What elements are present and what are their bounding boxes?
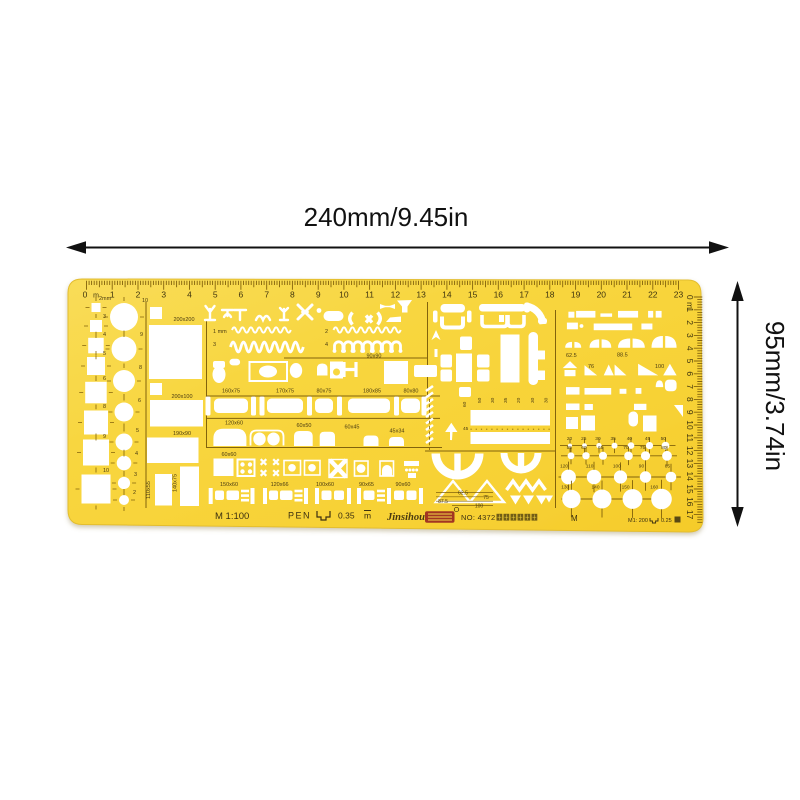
svg-text:100: 100 — [475, 504, 484, 510]
svg-text:180x85: 180x85 — [363, 389, 381, 395]
svg-text:70: 70 — [623, 445, 629, 451]
svg-text:170x75: 170x75 — [276, 389, 294, 395]
svg-text:60: 60 — [581, 445, 587, 451]
svg-text:35: 35 — [611, 436, 617, 442]
svg-text:6: 6 — [239, 290, 244, 300]
svg-text:12: 12 — [391, 290, 401, 300]
svg-text:17: 17 — [519, 290, 529, 300]
svg-text:45: 45 — [463, 426, 469, 432]
svg-text:6: 6 — [103, 376, 106, 382]
svg-text:7: 7 — [264, 290, 269, 300]
svg-text:0: 0 — [83, 290, 88, 300]
svg-text:5: 5 — [685, 359, 695, 364]
svg-text:10: 10 — [142, 298, 148, 304]
svg-text:5: 5 — [213, 290, 218, 300]
svg-text:87.5: 87.5 — [438, 499, 448, 505]
svg-text:80x75: 80x75 — [317, 389, 332, 395]
svg-text:18: 18 — [545, 290, 555, 300]
svg-text:11: 11 — [685, 433, 695, 442]
svg-text:3: 3 — [213, 342, 216, 348]
svg-text:160x75: 160x75 — [222, 389, 240, 395]
svg-text:2: 2 — [136, 290, 141, 300]
svg-text:120x60: 120x60 — [225, 421, 243, 427]
svg-text:110x55: 110x55 — [146, 481, 152, 499]
svg-text:62.5: 62.5 — [566, 353, 577, 359]
svg-text:2: 2 — [133, 490, 136, 496]
svg-text:60x45: 60x45 — [345, 425, 360, 431]
svg-text:m: m — [364, 511, 371, 521]
svg-text:M: M — [571, 514, 578, 523]
svg-text:22: 22 — [648, 290, 658, 300]
svg-text:13: 13 — [416, 290, 426, 300]
svg-text:5: 5 — [136, 428, 139, 434]
svg-text:1: 1 — [685, 307, 695, 312]
svg-text:90x60: 90x60 — [396, 482, 411, 488]
svg-text:21: 21 — [622, 290, 632, 300]
svg-text:40: 40 — [627, 436, 633, 442]
svg-text:NO: 4372: NO: 4372 — [461, 513, 496, 522]
svg-text:50: 50 — [477, 397, 483, 403]
svg-text:8: 8 — [685, 397, 695, 402]
svg-text:3: 3 — [685, 333, 695, 338]
svg-text:45: 45 — [645, 436, 651, 442]
svg-text:1 mm: 1 mm — [213, 329, 227, 335]
svg-text:200x100: 200x100 — [171, 394, 192, 400]
svg-text:50: 50 — [661, 436, 667, 442]
svg-text:90x90: 90x90 — [367, 354, 382, 360]
svg-text:55: 55 — [567, 445, 573, 451]
svg-text:30: 30 — [530, 397, 536, 403]
svg-text:0.35: 0.35 — [338, 511, 355, 521]
svg-text:140x75: 140x75 — [173, 474, 179, 492]
svg-text:16: 16 — [494, 290, 504, 300]
svg-text:240mm/9.45in: 240mm/9.45in — [304, 202, 469, 232]
svg-text:150: 150 — [622, 484, 630, 490]
svg-text:4: 4 — [103, 332, 106, 338]
svg-text:110: 110 — [586, 463, 594, 469]
svg-text:75: 75 — [640, 445, 646, 451]
svg-text:17: 17 — [685, 510, 695, 520]
svg-text:88.5: 88.5 — [617, 353, 628, 359]
svg-text:M1: 200: M1: 200 — [628, 518, 648, 524]
svg-text:14: 14 — [442, 290, 452, 300]
svg-text:30: 30 — [544, 397, 550, 403]
svg-text:25: 25 — [581, 436, 587, 442]
svg-text:10: 10 — [103, 468, 109, 474]
svg-text:12: 12 — [685, 446, 695, 456]
svg-text:30: 30 — [595, 436, 601, 442]
svg-text:4: 4 — [325, 342, 328, 348]
svg-text:80: 80 — [661, 445, 667, 451]
svg-text:8: 8 — [290, 290, 295, 300]
svg-text:4: 4 — [685, 346, 695, 351]
svg-text:10: 10 — [339, 290, 349, 300]
svg-text:140: 140 — [592, 484, 600, 490]
svg-text:120: 120 — [560, 463, 568, 469]
svg-text:23: 23 — [674, 290, 684, 300]
svg-text:120x66: 120x66 — [271, 482, 289, 488]
svg-text:3: 3 — [161, 290, 166, 300]
svg-text:Jinsihou: Jinsihou — [386, 512, 425, 523]
svg-text:7: 7 — [685, 384, 695, 389]
svg-text:19: 19 — [571, 290, 581, 300]
svg-text:2: 2 — [685, 320, 695, 325]
svg-text:60x50: 60x50 — [297, 423, 312, 429]
svg-text:35: 35 — [503, 397, 509, 403]
svg-text:160: 160 — [650, 484, 658, 490]
svg-text:PEN: PEN — [288, 511, 311, 521]
svg-text:60x60: 60x60 — [222, 452, 237, 458]
svg-text:20: 20 — [567, 436, 573, 442]
svg-text:3: 3 — [134, 472, 137, 478]
svg-text:M 1:100: M 1:100 — [215, 511, 249, 522]
svg-text:6: 6 — [138, 398, 141, 404]
svg-text:9: 9 — [316, 290, 321, 300]
svg-text:90: 90 — [639, 463, 645, 469]
svg-text:9: 9 — [685, 410, 695, 415]
svg-text:13: 13 — [685, 459, 695, 469]
svg-text:90x65: 90x65 — [359, 482, 374, 488]
svg-text:15: 15 — [685, 484, 695, 494]
svg-text:60: 60 — [462, 401, 468, 407]
svg-text:2: 2 — [325, 329, 328, 335]
svg-text:6: 6 — [685, 371, 695, 376]
svg-text:95mm/3.74in: 95mm/3.74in — [760, 321, 790, 471]
svg-text:15: 15 — [468, 290, 478, 300]
svg-text:65: 65 — [598, 445, 604, 451]
svg-text:8: 8 — [139, 365, 142, 371]
svg-text:85: 85 — [665, 463, 671, 469]
svg-text:2mm: 2mm — [99, 296, 112, 302]
svg-text:10: 10 — [685, 420, 695, 430]
svg-text:45x34: 45x34 — [390, 429, 405, 435]
svg-text:4: 4 — [187, 290, 192, 300]
svg-text:20: 20 — [516, 397, 522, 403]
svg-text:9: 9 — [140, 332, 143, 338]
svg-text:100x60: 100x60 — [316, 482, 334, 488]
svg-text:200x200: 200x200 — [173, 317, 194, 323]
svg-text:62.5: 62.5 — [458, 490, 468, 496]
svg-text:4: 4 — [135, 451, 138, 457]
svg-text:80x80: 80x80 — [404, 389, 419, 395]
svg-text:150x60: 150x60 — [220, 482, 238, 488]
svg-text:9: 9 — [103, 434, 106, 440]
svg-text:190x90: 190x90 — [173, 431, 191, 437]
svg-text:16: 16 — [685, 497, 695, 507]
svg-text:30: 30 — [490, 397, 496, 403]
svg-text:8: 8 — [103, 404, 106, 410]
svg-text:100: 100 — [655, 364, 664, 370]
svg-text:20: 20 — [597, 290, 607, 300]
svg-text:5: 5 — [103, 351, 106, 357]
svg-text:14: 14 — [685, 471, 695, 481]
svg-text:130: 130 — [561, 484, 569, 490]
svg-text:100: 100 — [613, 463, 621, 469]
svg-text:75: 75 — [483, 495, 489, 501]
svg-text:11: 11 — [365, 290, 374, 300]
svg-text:0.25: 0.25 — [661, 518, 672, 524]
